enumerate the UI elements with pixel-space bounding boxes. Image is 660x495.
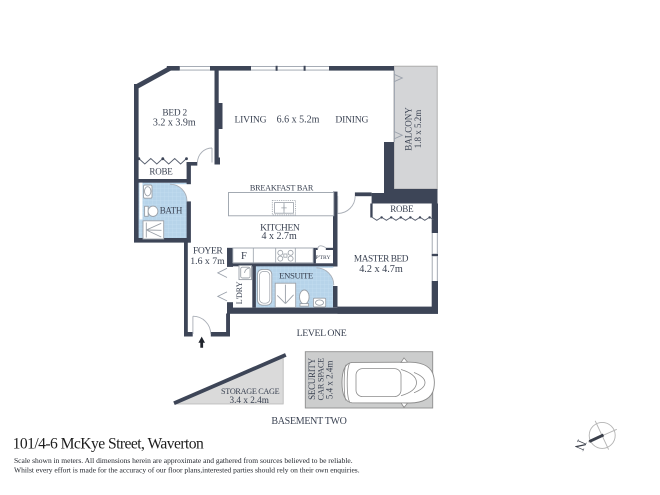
svg-text:ROBE: ROBE: [149, 167, 173, 177]
svg-text:P'TRY: P'TRY: [316, 255, 331, 261]
svg-text:101/4-6 McKye Street, Waverton: 101/4-6 McKye Street, Waverton: [13, 435, 204, 452]
svg-text:MASTER BED: MASTER BED: [354, 254, 409, 264]
svg-text:6.6 x 5.2m: 6.6 x 5.2m: [277, 115, 320, 126]
svg-text:BASEMENT TWO: BASEMENT TWO: [271, 416, 346, 427]
svg-text:5.4 x 2.4m: 5.4 x 2.4m: [325, 361, 335, 400]
svg-text:3.4 x 2.4m: 3.4 x 2.4m: [230, 395, 269, 405]
svg-text:DINING: DINING: [335, 115, 368, 126]
svg-text:BALCONY: BALCONY: [403, 107, 413, 151]
svg-text:F: F: [241, 251, 247, 262]
svg-text:1.6 x 7m: 1.6 x 7m: [190, 256, 225, 267]
svg-text:4 x 2.7m: 4 x 2.7m: [261, 231, 297, 242]
svg-text:Scale shown in meters. All di: Scale shown in meters. All dimensions he…: [14, 456, 353, 465]
svg-text:LIVING: LIVING: [234, 115, 266, 126]
svg-text:FOYER: FOYER: [193, 246, 223, 257]
svg-text:BATH: BATH: [160, 205, 183, 215]
svg-text:L'DRY: L'DRY: [235, 281, 244, 304]
svg-text:Whilst every effort is made fo: Whilst every effort is made for the accu…: [14, 465, 360, 474]
svg-text:3.2 x 3.9m: 3.2 x 3.9m: [153, 118, 196, 129]
svg-text:ENSUITE: ENSUITE: [279, 271, 313, 281]
svg-text:BREAKFAST BAR: BREAKFAST BAR: [250, 183, 314, 192]
svg-text:LEVEL ONE: LEVEL ONE: [297, 328, 347, 339]
svg-text:ROBE: ROBE: [390, 204, 414, 214]
svg-text:1.8 x 5.2m: 1.8 x 5.2m: [413, 110, 423, 149]
svg-text:4.2 x 4.7m: 4.2 x 4.7m: [359, 264, 403, 275]
